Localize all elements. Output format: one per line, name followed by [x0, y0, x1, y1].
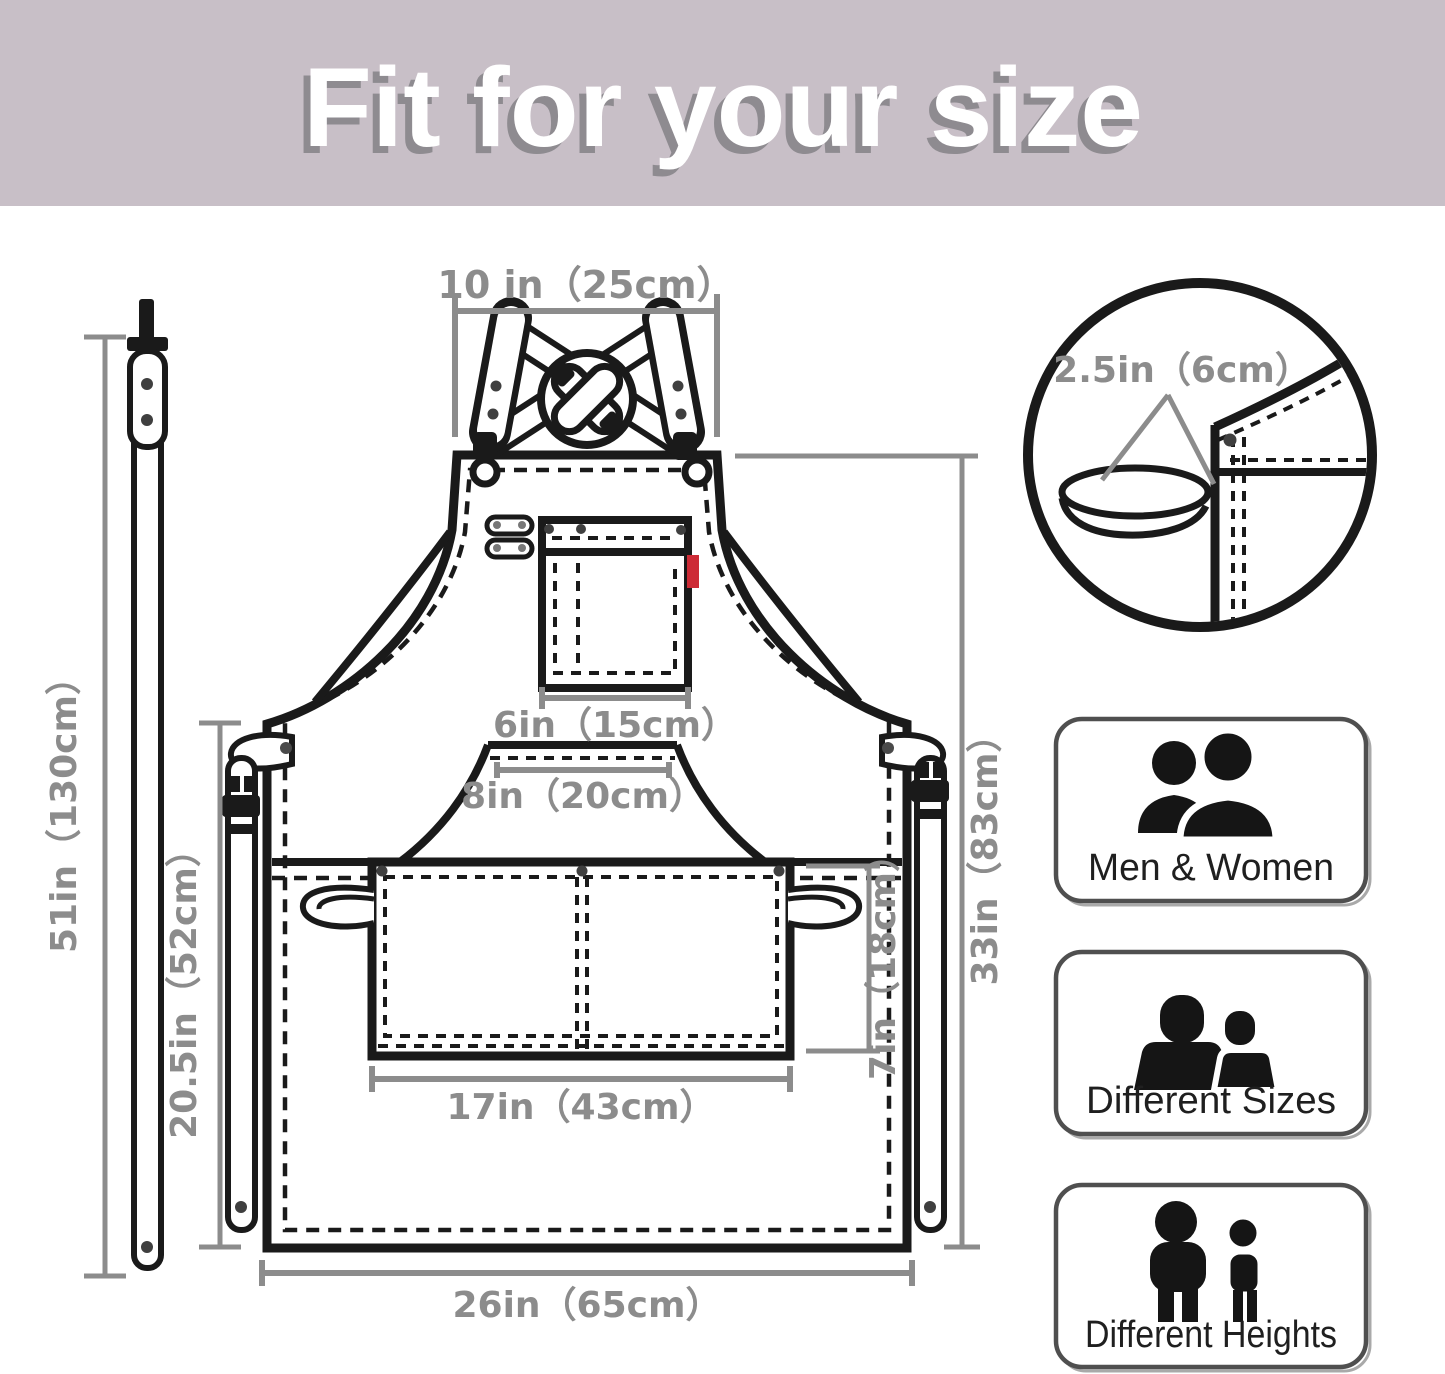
badge-different-sizes-label: Different Sizes: [1086, 1080, 1336, 1122]
rivet: [235, 1201, 247, 1213]
neck-strap-clip: [130, 351, 165, 447]
dimension-33in-label: 33in（83cm）: [965, 716, 1006, 985]
right-hanging-strap: [917, 758, 944, 1230]
rivet: [544, 524, 554, 534]
dimension-6in-label: 6in（15cm）: [493, 705, 737, 746]
left-strap-clip: [473, 432, 497, 460]
rivet: [491, 381, 502, 392]
brand-tag: [687, 555, 699, 588]
rivet: [576, 524, 586, 534]
rivet: [141, 414, 153, 426]
right-strap-clip: [673, 432, 697, 460]
rivet: [1224, 434, 1237, 447]
rivet: [141, 1241, 153, 1253]
badge-men-women: Men & Women: [1056, 719, 1370, 905]
rivet: [493, 521, 501, 529]
rivet: [518, 521, 526, 529]
dimension-26in-label: 26in（65cm）: [452, 1285, 721, 1326]
header-band: Fit for your size Fit for your size: [0, 0, 1445, 206]
rivet: [673, 381, 684, 392]
badge-different-heights-label: Different Heights: [1085, 1314, 1337, 1356]
left-towel-loop: [303, 888, 374, 927]
dimension-loop-width-label: 2.5in（6cm）: [1053, 350, 1311, 391]
dimension-8in-label: 8in（20cm）: [461, 776, 705, 817]
grommet: [280, 742, 292, 754]
neck-strap-tip: [139, 299, 154, 341]
dimension-20-5in-label: 20.5in（52cm）: [164, 831, 205, 1139]
badge-different-heights: Different Heights: [1056, 1185, 1370, 1371]
detail-circle: 2.5in（6cm）: [1028, 283, 1380, 630]
rivet: [493, 544, 501, 552]
dimension-7in-label: 7in（18cm）: [863, 836, 904, 1080]
badge-men-women-label: Men & Women: [1088, 847, 1334, 889]
dimension-line-51in: [84, 337, 126, 1276]
chest-pocket: [542, 520, 699, 688]
grommet: [473, 460, 497, 484]
rivet: [141, 378, 153, 390]
strap-loop: [1062, 468, 1208, 516]
neck-strap-body: [134, 356, 161, 1268]
rivet: [774, 866, 785, 877]
rivet: [518, 544, 526, 552]
apron-size-diagram: Fit for your size Fit for your size: [0, 0, 1445, 1374]
rivet: [676, 409, 687, 420]
diagram-canvas: Fit for your size Fit for your size: [0, 0, 1445, 1374]
rivet: [488, 409, 499, 420]
left-strap-buckle: [222, 795, 260, 817]
rivet: [377, 866, 388, 877]
page-title: Fit for your size: [303, 45, 1143, 170]
dimension-line-26in: [262, 1260, 912, 1286]
neck-strap-drawing: [127, 299, 168, 1268]
dimension-17in-label: 17in（43cm）: [446, 1087, 715, 1128]
dimension-51in-label: 51in（130cm）: [44, 659, 85, 953]
badge-different-sizes: Different Sizes: [1056, 952, 1370, 1138]
strap-logo-icon: [541, 353, 633, 445]
rivet: [924, 1201, 936, 1213]
grommet: [882, 742, 894, 754]
front-pocket: [372, 862, 790, 1056]
right-strap-buckle: [911, 780, 949, 802]
rivet: [676, 525, 686, 535]
rivet: [577, 866, 588, 877]
grommet: [685, 460, 709, 484]
dimension-10in-label: 10 in（25cm）: [437, 263, 734, 307]
right-towel-loop: [788, 888, 859, 927]
